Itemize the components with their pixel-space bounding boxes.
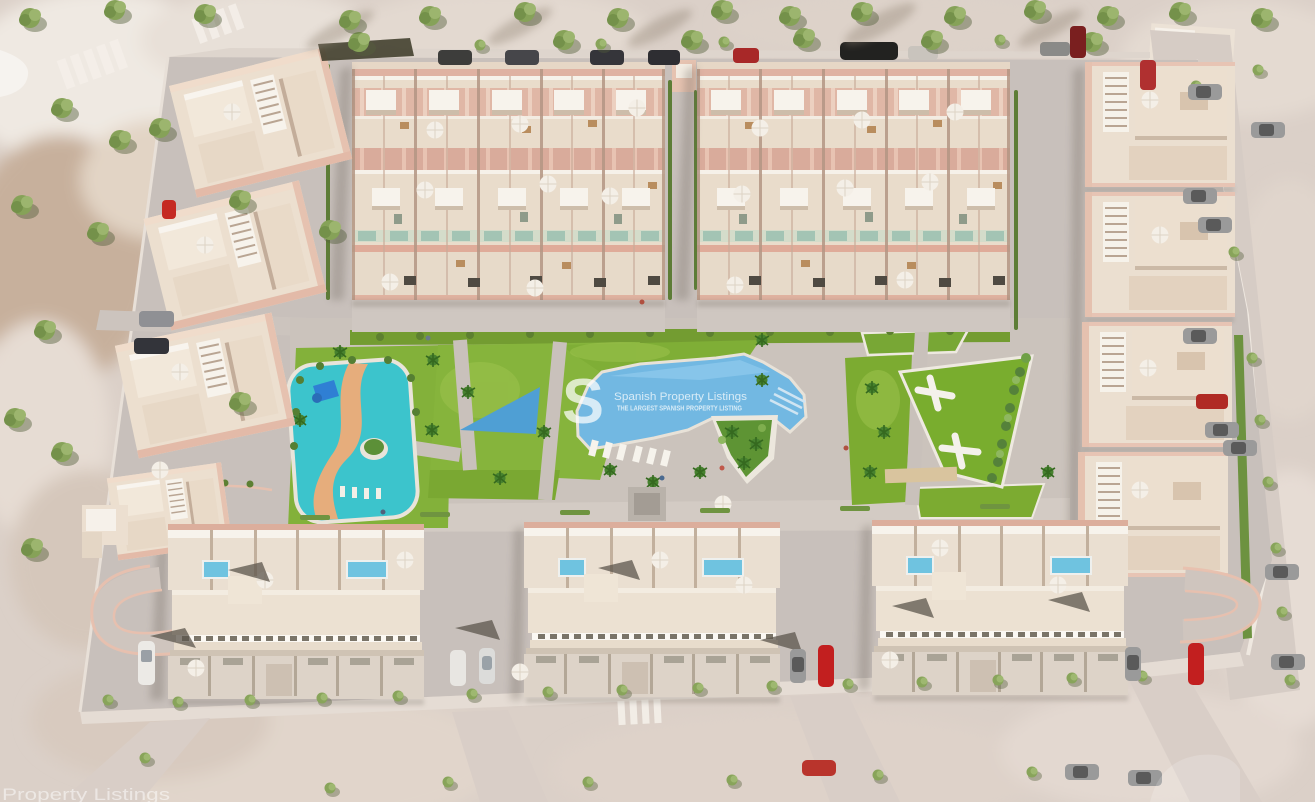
svg-text:S: S	[562, 367, 604, 437]
svg-text:Property Listings: Property Listings	[2, 785, 170, 802]
svg-text:THE LARGEST SPANISH PROPERTY L: THE LARGEST SPANISH PROPERTY LISTING	[617, 406, 742, 413]
svg-text:Spanish Property Listings: Spanish Property Listings	[614, 391, 748, 403]
